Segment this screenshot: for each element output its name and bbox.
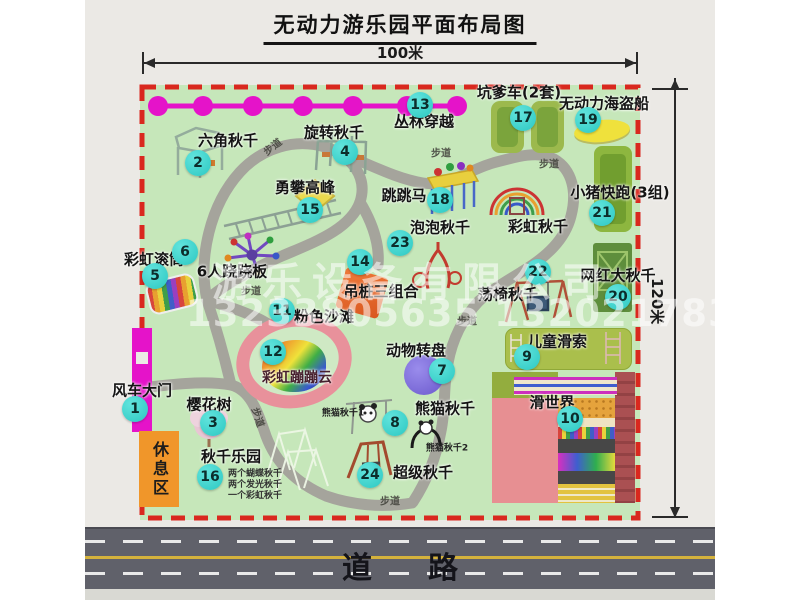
attraction-badge-21: 21 xyxy=(589,200,615,226)
attraction-badge-24: 24 xyxy=(357,462,383,488)
walkway-label-2: 步道 xyxy=(431,145,451,160)
attraction-badge-19: 19 xyxy=(575,107,601,133)
attraction-label-21: 小猪快跑(3组) xyxy=(570,182,669,203)
attraction-label-7: 动物转盘 xyxy=(386,340,446,361)
attraction-badge-4: 4 xyxy=(332,139,358,165)
attraction-label-18: 跳跳马 xyxy=(381,185,426,206)
panda-swing-1-label: 熊猫秋千1 xyxy=(322,406,364,419)
walkway-label-3: 步道 xyxy=(539,156,559,171)
attraction-label-24: 超级秋千 xyxy=(393,462,453,483)
attraction-badge-14: 14 xyxy=(347,249,373,275)
attraction-badge-2: 2 xyxy=(185,150,211,176)
screenshot-root: 无动力游乐园平面布局图 100米 120米 xyxy=(0,0,800,600)
attraction-badge-7: 7 xyxy=(429,358,455,384)
marker-layer: 风车大门1六角秋千2樱花树3旋转秋千4彩虹滚筒56人跷跷板6动物转盘7熊猫秋千8… xyxy=(0,0,800,600)
attraction-badge-17: 17 xyxy=(510,105,536,131)
walkway-label-6: 步道 xyxy=(457,313,477,328)
walkway-label-7: 步道 xyxy=(380,493,400,508)
attraction-badge-15: 15 xyxy=(297,197,323,223)
attraction-label-8: 熊猫秋千 xyxy=(415,398,475,419)
attraction-label-23: 泡泡秋千 xyxy=(410,217,470,238)
panda-swing-2-label: 熊猫秋千2 xyxy=(426,441,468,454)
attraction-label-12: 彩虹蹦蹦云 xyxy=(262,367,332,387)
attraction-badge-13: 13 xyxy=(407,92,433,118)
attraction-label-17: 坑爹车(2套) xyxy=(477,82,561,103)
attraction-badge-20: 20 xyxy=(605,284,631,310)
attraction-badge-6: 6 xyxy=(172,239,198,265)
attraction-badge-8: 8 xyxy=(382,410,408,436)
attraction-badge-16: 16 xyxy=(197,464,223,490)
swing-park-note-3: 一个彩虹秋千 xyxy=(228,488,282,501)
rainbow-swing-label: 彩虹秋千 xyxy=(508,216,568,237)
road: 道路 xyxy=(85,527,715,591)
attraction-label-20: 网红大秋千 xyxy=(580,265,655,286)
attraction-label-19: 无动力海盗船 xyxy=(559,93,649,114)
walkway-label-5: 步道 xyxy=(249,405,269,429)
attraction-badge-18: 18 xyxy=(427,187,453,213)
road-label: 道路 xyxy=(85,543,715,587)
attraction-label-11: 粉色沙滩 xyxy=(294,306,354,327)
attraction-badge-9: 9 xyxy=(514,344,540,370)
attraction-label-15: 勇攀高峰 xyxy=(275,177,335,198)
attraction-badge-23: 23 xyxy=(387,230,413,256)
walkway-label-1: 步道 xyxy=(260,134,285,158)
attraction-label-2: 六角秋千 xyxy=(198,130,258,151)
road-shoulder xyxy=(85,589,715,600)
attraction-badge-5: 5 xyxy=(142,263,168,289)
attraction-badge-1: 1 xyxy=(122,396,148,422)
attraction-label-14: 吊桩三组合 xyxy=(343,281,418,302)
attraction-badge-10: 10 xyxy=(557,406,583,432)
attraction-badge-3: 3 xyxy=(200,410,226,436)
attraction-badge-22: 22 xyxy=(525,259,551,285)
attraction-label-4: 旋转秋千 xyxy=(304,122,364,143)
attraction-label-22: 荡椅秋千 xyxy=(478,284,538,305)
attraction-badge-11: 11 xyxy=(269,298,295,324)
walkway-label-4: 步道 xyxy=(241,283,261,298)
attraction-badge-12: 12 xyxy=(260,339,286,365)
attraction-label-6: 6人跷跷板 xyxy=(197,261,267,282)
